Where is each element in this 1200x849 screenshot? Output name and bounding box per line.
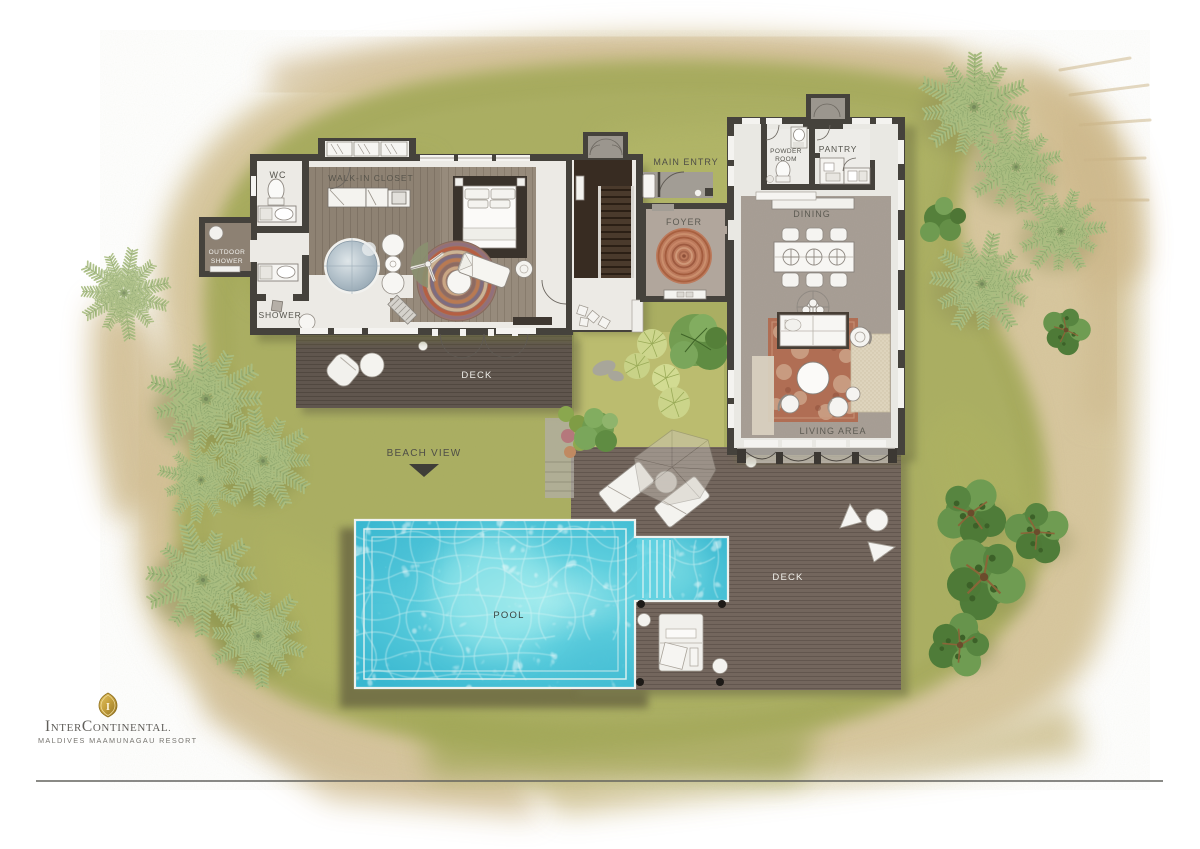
svg-text:MALDIVES MAAMUNAGAU RESORT: MALDIVES MAAMUNAGAU RESORT [38, 736, 197, 745]
svg-text:BEACH VIEW: BEACH VIEW [387, 448, 462, 459]
svg-text:SHOWER: SHOWER [211, 258, 243, 265]
svg-text:DINING: DINING [793, 209, 831, 219]
svg-text:DECK: DECK [461, 370, 492, 381]
svg-text:POWDER: POWDER [770, 148, 802, 155]
svg-text:DECK: DECK [772, 572, 803, 583]
svg-text:I: I [106, 702, 110, 713]
svg-text:WC: WC [270, 170, 287, 180]
svg-text:OUTDOOR: OUTDOOR [209, 249, 246, 256]
svg-text:SHOWER: SHOWER [258, 310, 301, 320]
svg-text:WALK-IN CLOSET: WALK-IN CLOSET [328, 173, 413, 183]
svg-text:FOYER: FOYER [666, 217, 702, 227]
svg-text:InterContinental.: InterContinental. [45, 718, 171, 735]
svg-text:ROOM: ROOM [775, 156, 797, 163]
svg-text:LIVING AREA: LIVING AREA [799, 426, 866, 436]
svg-text:MAIN ENTRY: MAIN ENTRY [653, 157, 718, 167]
svg-text:PANTRY: PANTRY [819, 144, 858, 154]
svg-text:POOL: POOL [493, 610, 524, 621]
